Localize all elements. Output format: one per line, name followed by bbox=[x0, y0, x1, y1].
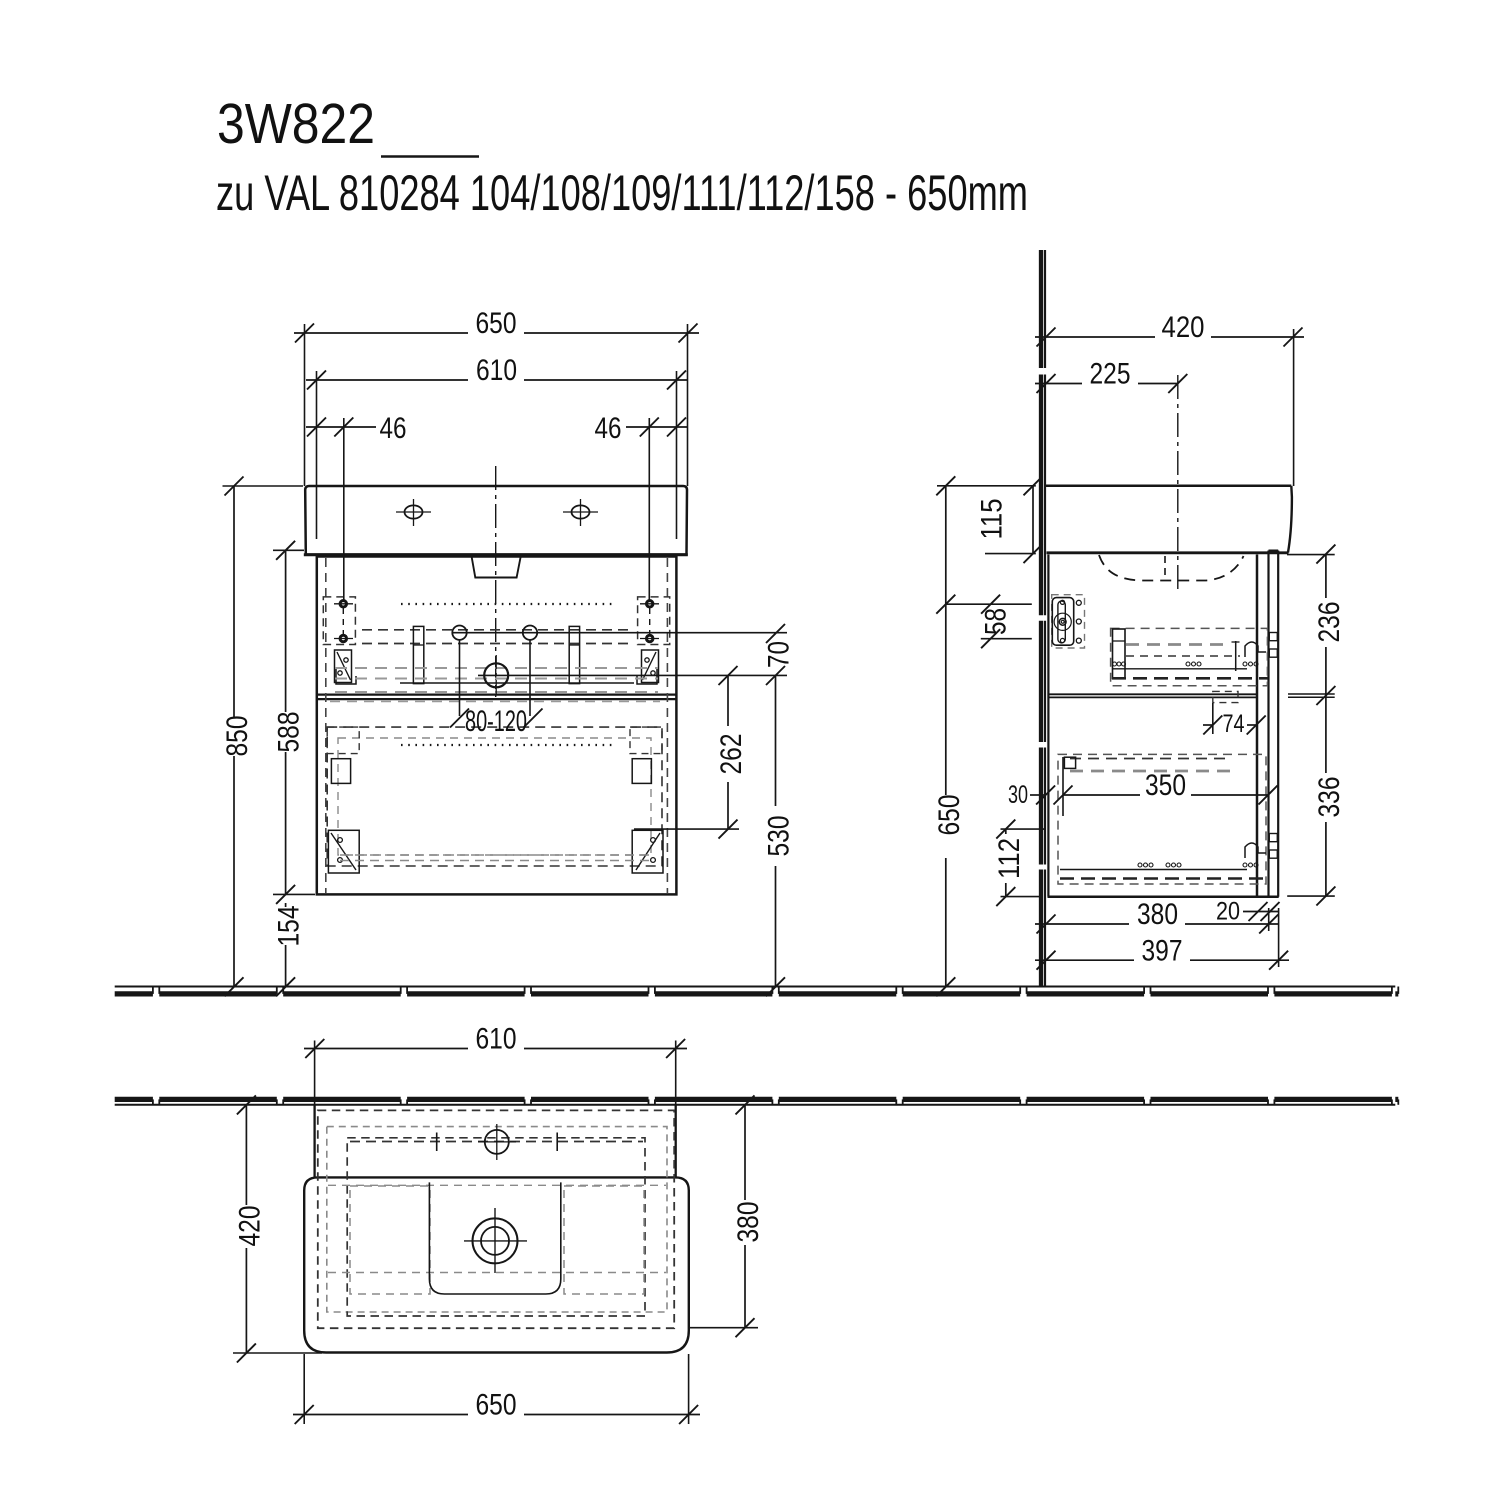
svg-text:650: 650 bbox=[476, 307, 517, 340]
svg-text:154: 154 bbox=[273, 906, 306, 947]
svg-text:236: 236 bbox=[1313, 602, 1346, 643]
svg-text:610: 610 bbox=[476, 354, 517, 387]
svg-text:650: 650 bbox=[933, 795, 966, 836]
svg-text:46: 46 bbox=[595, 412, 622, 445]
svg-text:397: 397 bbox=[1142, 934, 1183, 967]
svg-text:zu VAL 810284 104/108/109/111/: zu VAL 810284 104/108/109/111/112/158 - … bbox=[216, 165, 1028, 221]
svg-text:3W822: 3W822 bbox=[217, 92, 375, 156]
svg-text:262: 262 bbox=[715, 734, 748, 775]
svg-text:112: 112 bbox=[993, 838, 1026, 879]
svg-text:380: 380 bbox=[1137, 898, 1178, 931]
svg-text:350: 350 bbox=[1145, 769, 1186, 802]
svg-text:336: 336 bbox=[1313, 777, 1346, 818]
svg-text:115: 115 bbox=[976, 499, 1009, 540]
svg-text:58: 58 bbox=[980, 608, 1013, 635]
svg-text:610: 610 bbox=[476, 1023, 517, 1056]
svg-text:530: 530 bbox=[763, 816, 796, 857]
svg-text:80-120: 80-120 bbox=[465, 705, 527, 738]
svg-text:588: 588 bbox=[273, 712, 306, 753]
svg-text:225: 225 bbox=[1090, 358, 1131, 391]
svg-text:74: 74 bbox=[1223, 710, 1245, 738]
svg-text:46: 46 bbox=[380, 412, 407, 445]
svg-text:20: 20 bbox=[1216, 898, 1240, 926]
svg-text:420: 420 bbox=[1162, 311, 1205, 344]
svg-text:70: 70 bbox=[763, 641, 796, 668]
svg-text:850: 850 bbox=[221, 716, 254, 757]
svg-text:380: 380 bbox=[732, 1202, 765, 1243]
svg-text:30: 30 bbox=[1008, 781, 1028, 809]
svg-text:650: 650 bbox=[476, 1389, 517, 1422]
svg-text:420: 420 bbox=[233, 1206, 266, 1247]
